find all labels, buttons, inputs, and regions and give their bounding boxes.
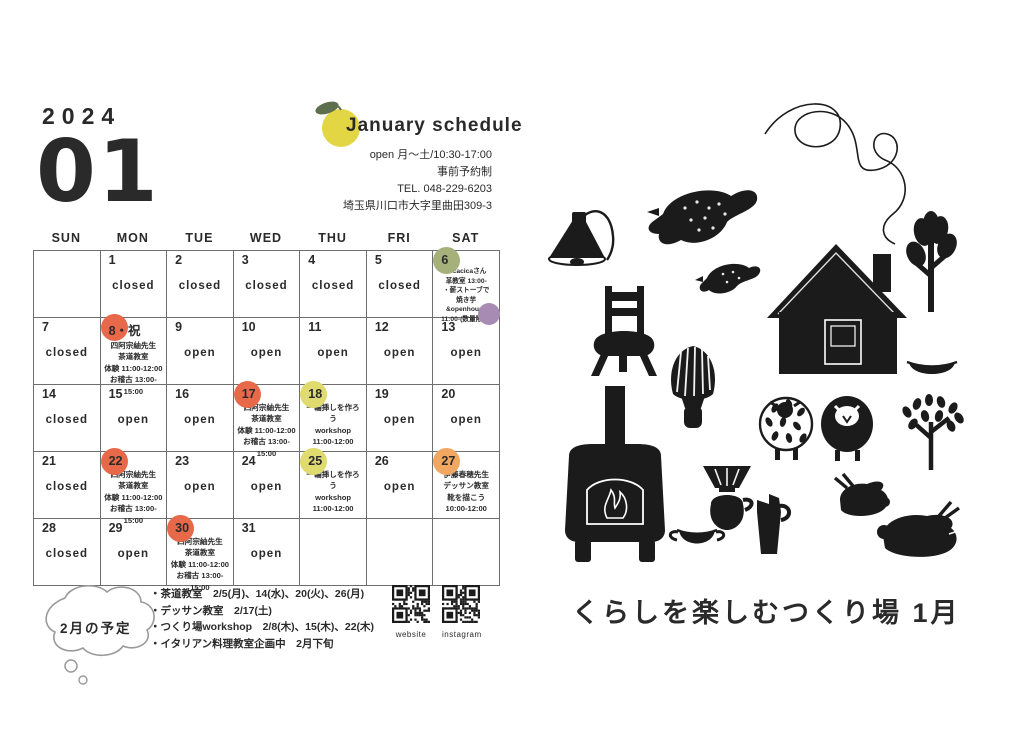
calendar-cell: 14closed [34,385,101,452]
day-events: 一輪挿しを作ろうworkshop11:00-12:00 [303,469,363,515]
event-line: 11:00-12:00 [303,503,363,514]
chair-icon [591,286,657,376]
day-number: 21 [37,454,97,468]
day-status: open [170,481,230,493]
calendar-cell: 23open [167,452,234,519]
event-line: 茶道教室 [104,351,164,362]
event-line: 体験 11:00-12:00 [170,559,230,570]
calendar-cell [367,519,434,586]
calendar-cell: 11open [300,318,367,385]
smoke-swirl-icon [765,104,905,244]
day-status: closed [37,548,97,560]
qr-instagram-label: instagram [442,630,480,639]
day-number: 7 [37,320,97,334]
calendar-cell: 31open [234,519,301,586]
qr-instagram: instagram [442,585,480,639]
event-line: 靴を描こう [436,492,496,503]
qr-code-instagram-icon [442,585,480,623]
calendar-cell: 28closed [34,519,101,586]
day-status: closed [303,280,363,292]
day-number: 17 [237,387,297,401]
event-line: 体験 11:00-12:00 [104,492,164,503]
purple-dot [478,303,500,325]
day-number: 20 [436,387,496,401]
day-number: 2 [170,253,230,267]
month-number: 01 [36,122,160,222]
event-line: 11:00-12:00 [303,436,363,447]
day-status: closed [37,414,97,426]
day-events: 四阿宗紬先生茶道教室体験 11:00-12:00お稽古 13:00-15:00 [104,469,164,526]
day-number: 18 [303,387,363,401]
event-line: workshop [303,492,363,503]
tea-whisk-icon [671,346,715,428]
event-line: 体験 11:00-12:00 [104,363,164,374]
calendar-cell [433,519,500,586]
february-note-line: ・イタリアン料理教室企画中 2月下旬 [150,636,374,653]
event-line: 四阿宗紬先生 [104,340,164,351]
calendar-cell: 8・祝四阿宗紬先生茶道教室体験 11:00-12:00お稽古 13:00-15:… [101,318,168,385]
event-line: ・薪ストーブで [436,286,496,296]
day-status: open [436,414,496,426]
day-number: 31 [237,521,297,535]
wood-stove-icon [565,386,665,562]
weekday-label: WED [233,231,300,245]
calendar-cell: 9open [167,318,234,385]
cup-icon [670,530,723,544]
event-line: 革教室 13:00- [436,277,496,287]
day-events: 四阿宗紬先生茶道教室体験 11:00-12:00お稽古 13:00-15:00 [237,402,297,459]
day-number: 14 [37,387,97,401]
pine-tree-icon [902,211,960,312]
day-number: 19 [370,387,430,401]
day-status: closed [370,280,430,292]
day-number: 4 [303,253,363,267]
shop-info: open 月〜土/10:30-17:00事前予約制TEL. 048-229-62… [343,147,492,215]
shop-info-line: 埼玉県川口市大字里曲田309-3 [343,198,492,215]
flyer-page: 2024 01 January schedule open 月〜土/10:30-… [0,0,1024,731]
february-note-line: ・茶道教室 2/5(月)、14(水)、20(火)、26(月) [150,586,374,603]
day-status: open [303,347,363,359]
calendar-cell: 27伊藤春穂先生デッサン教室靴を描こう10:00-12:00 [433,452,500,519]
day-number: 29 [104,521,164,535]
day-number: 24 [237,454,297,468]
day-status: closed [37,481,97,493]
day-number: 27 [436,454,496,468]
calendar-cell: 20open [433,385,500,452]
pitcher-icon [757,494,789,554]
event-line: 茶道教室 [104,480,164,491]
day-status: open [237,347,297,359]
qr-website: website [392,585,430,639]
calendar-cell: 25一輪挿しを作ろうworkshop11:00-12:00 [300,452,367,519]
day-status: open [104,414,164,426]
day-number: 11 [303,320,363,334]
weekday-label: FRI [366,231,433,245]
winter-scene-illustration [535,86,1005,578]
hanging-lamp-icon [549,211,613,266]
event-line: 茶道教室 [237,413,297,424]
weekday-label: THU [299,231,366,245]
calendar-cell: 17四阿宗紬先生茶道教室体験 11:00-12:00お稽古 13:00-15:0… [234,385,301,452]
day-events: 四阿宗紬先生茶道教室体験 11:00-12:00お稽古 13:00-15:00 [170,536,230,593]
day-status: open [370,414,430,426]
spotted-sheep-icon [760,398,812,460]
day-status: open [436,347,496,359]
footer-title: くらしを楽しむつくり場 1月 [572,591,961,630]
day-number: 6 [436,253,496,267]
event-line: デッサン教室 [436,480,496,491]
calendar-cell: 10open [234,318,301,385]
lying-rabbit-icon [877,502,959,557]
small-bird-icon [695,264,760,294]
event-line: 10:00-12:00 [436,503,496,514]
day-events: 一輪挿しを作ろうworkshop11:00-12:00 [303,402,363,448]
day-number: 5 [370,253,430,267]
flying-bird-icon [647,190,757,244]
calendar-cell: 24open [234,452,301,519]
event-line: 茶道教室 [170,547,230,558]
weekday-label: SAT [432,231,499,245]
calendar-cell: 4closed [300,251,367,318]
calendar-cell: 18一輪挿しを作ろうworkshop11:00-12:00 [300,385,367,452]
calendar-cell: 5closed [367,251,434,318]
day-number: 8・祝 [104,320,164,339]
day-status: open [237,481,297,493]
day-number: 10 [237,320,297,334]
shop-info-line: 事前予約制 [343,164,492,181]
day-number: 23 [170,454,230,468]
calendar-cell [300,519,367,586]
event-line: 体験 11:00-12:00 [237,425,297,436]
day-number: 22 [104,454,164,468]
calendar-cell: 26open [367,452,434,519]
day-status: open [104,548,164,560]
day-number: 3 [237,253,297,267]
calendar-cell: 19open [367,385,434,452]
february-bubble-label: 2月の予定 [60,617,132,637]
bowl-icon [907,362,957,374]
calendar-cell: 15open [101,385,168,452]
day-events: 伊藤春穂先生デッサン教室靴を描こう10:00-12:00 [436,469,496,515]
day-status: closed [37,347,97,359]
calendar-cell: 3closed [234,251,301,318]
calendar-cell: 1closed [101,251,168,318]
day-number: 26 [370,454,430,468]
crouching-rabbit-icon [835,474,890,516]
weekday-label: MON [100,231,167,245]
calendar-cell: 12open [367,318,434,385]
february-note-line: ・つくり場workshop 2/8(木)、15(木)、22(木) [150,619,374,636]
calendar-cell: 13open [433,318,500,385]
day-status: open [370,481,430,493]
day-status: closed [170,280,230,292]
day-status: closed [237,280,297,292]
day-number: 12 [370,320,430,334]
day-number: 16 [170,387,230,401]
calendar-cell [34,251,101,318]
day-status: open [237,548,297,560]
shop-info-line: TEL. 048-229-6203 [343,181,492,198]
day-number: 15 [104,387,164,401]
day-number: 1 [104,253,164,267]
schedule-title: January schedule [346,115,523,137]
black-sheep-icon [821,396,873,461]
weekday-label: TUE [166,231,233,245]
calendar-cell: 7closed [34,318,101,385]
calendar-cell: 21closed [34,452,101,519]
leafy-tree-icon [901,394,966,470]
house-icon [767,244,907,374]
qr-website-label: website [392,630,430,639]
calendar-grid: 1closed2closed3closed4closed5closed6・cac… [33,250,500,586]
day-status: open [370,347,430,359]
day-number: 30 [170,521,230,535]
event-line: workshop [303,425,363,436]
calendar-cell: 2closed [167,251,234,318]
calendar-cell: 22四阿宗紬先生茶道教室体験 11:00-12:00お稽古 13:00-15:0… [101,452,168,519]
weekday-header-row: SUNMONTUEWEDTHUFRISAT [33,231,499,245]
weekday-label: SUN [33,231,100,245]
day-status: open [170,347,230,359]
shop-info-line: open 月〜土/10:30-17:00 [343,147,492,164]
day-number: 25 [303,454,363,468]
coffee-dripper-icon [703,466,752,530]
day-status: closed [104,280,164,292]
calendar-cell: 29open [101,519,168,586]
february-note-line: ・デッサン教室 2/17(土) [150,603,374,620]
february-notes: ・茶道教室 2/5(月)、14(水)、20(火)、26(月)・デッサン教室 2/… [150,586,374,652]
day-status: open [170,414,230,426]
day-number: 28 [37,521,97,535]
calendar-cell: 16open [167,385,234,452]
qr-code-website-icon [392,585,430,623]
calendar-cell: 30四阿宗紬先生茶道教室体験 11:00-12:00お稽古 13:00-15:0… [167,519,234,586]
day-number: 9 [170,320,230,334]
